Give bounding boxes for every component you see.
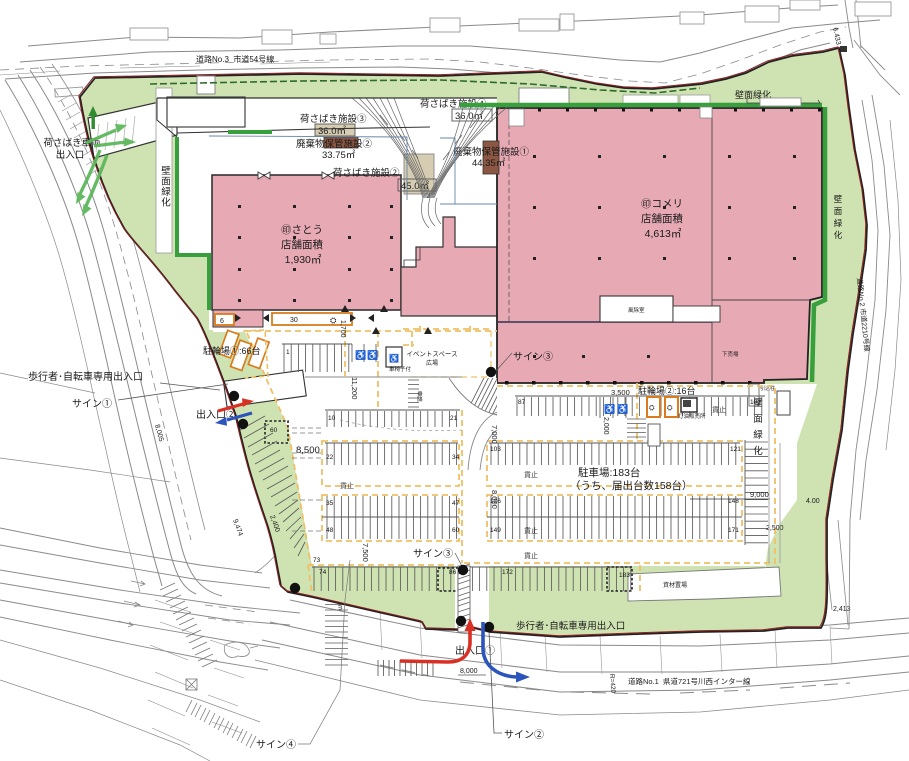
svg-text:21: 21 bbox=[450, 415, 458, 422]
svg-text:資材置場: 資材置場 bbox=[663, 581, 687, 589]
svg-text:荷さばき施設③: 荷さばき施設③ bbox=[300, 113, 367, 125]
svg-text:貨止: 貨止 bbox=[524, 470, 538, 479]
svg-text:103: 103 bbox=[490, 446, 501, 453]
svg-text:道路No.3 市道54号線: 道路No.3 市道54号線 bbox=[196, 54, 274, 64]
svg-text:㊞コメリ: ㊞コメリ bbox=[641, 198, 683, 210]
svg-text:♿: ♿ bbox=[355, 349, 366, 360]
svg-text:サイン③: サイン③ bbox=[513, 351, 553, 363]
svg-text:73: 73 bbox=[313, 557, 321, 564]
svg-text:乗降: 乗降 bbox=[416, 391, 423, 404]
svg-text:47: 47 bbox=[452, 500, 460, 507]
svg-text:60: 60 bbox=[452, 527, 460, 534]
svg-text:4.00: 4.00 bbox=[806, 498, 820, 505]
svg-text:171: 171 bbox=[728, 527, 739, 534]
svg-text:出入口①: 出入口① bbox=[455, 644, 495, 657]
svg-text:6: 6 bbox=[220, 318, 224, 325]
svg-text:サイン④: サイン④ bbox=[256, 739, 296, 751]
svg-text:貨止: 貨止 bbox=[524, 551, 538, 560]
svg-text:㊞さとう: ㊞さとう bbox=[281, 224, 323, 236]
svg-text:4,613㎡: 4,613㎡ bbox=[645, 228, 682, 240]
svg-text:34: 34 bbox=[452, 454, 460, 461]
svg-text:1,930㎡: 1,930㎡ bbox=[285, 254, 322, 266]
svg-text:9,000: 9,000 bbox=[750, 490, 769, 499]
svg-text:1: 1 bbox=[286, 349, 290, 356]
svg-text:3,500: 3,500 bbox=[611, 388, 630, 397]
svg-text:R=420: R=420 bbox=[608, 674, 616, 694]
svg-text:駐車場:183台: 駐車場:183台 bbox=[578, 466, 640, 479]
svg-text:駐輪場②:16台: 駐輪場②:16台 bbox=[638, 385, 696, 396]
svg-text:7,000: 7,000 bbox=[490, 425, 499, 444]
svg-text:出入口: 出入口 bbox=[56, 149, 85, 161]
svg-text:車椅子付: 車椅子付 bbox=[389, 365, 412, 373]
svg-text:貨止: 貨止 bbox=[340, 481, 354, 490]
svg-text:風除室: 風除室 bbox=[628, 306, 645, 314]
svg-text:87: 87 bbox=[518, 399, 526, 406]
svg-text:♿: ♿ bbox=[389, 353, 399, 363]
svg-text:183: 183 bbox=[619, 572, 630, 579]
svg-text:♿: ♿ bbox=[604, 403, 615, 414]
svg-text:33.75㎡: 33.75㎡ bbox=[322, 150, 356, 161]
svg-text:店舗面積: 店舗面積 bbox=[281, 238, 323, 251]
svg-text:⛭: ⛭ bbox=[667, 405, 673, 412]
svg-text:48: 48 bbox=[326, 527, 334, 534]
svg-text:7,500: 7,500 bbox=[361, 543, 370, 562]
svg-text:サイン③: サイン③ bbox=[413, 548, 453, 560]
svg-text:172: 172 bbox=[502, 569, 513, 576]
svg-text:下売場: 下売場 bbox=[722, 350, 739, 358]
svg-text:店舗面積: 店舗面積 bbox=[641, 212, 683, 225]
svg-text:貨止: 貨止 bbox=[712, 405, 726, 414]
svg-text:⛭: ⛭ bbox=[649, 405, 655, 412]
svg-text:22: 22 bbox=[326, 454, 334, 461]
svg-text:広場: 広場 bbox=[426, 359, 438, 367]
svg-text:8,000: 8,000 bbox=[460, 668, 478, 675]
svg-text:⛭: ⛭ bbox=[330, 316, 337, 325]
svg-text:1,700: 1,700 bbox=[339, 320, 346, 338]
svg-text:2,413: 2,413 bbox=[833, 606, 851, 613]
svg-text:44.35㎡: 44.35㎡ bbox=[472, 158, 506, 169]
svg-text:サイン②: サイン② bbox=[504, 729, 544, 741]
svg-text:74: 74 bbox=[319, 569, 327, 576]
svg-text:サイン①: サイン① bbox=[72, 398, 112, 410]
svg-text:8,500: 8,500 bbox=[296, 445, 320, 456]
svg-text:11,200: 11,200 bbox=[350, 377, 359, 399]
svg-text:駐輪場①:66台: 駐輪場①:66台 bbox=[203, 345, 261, 356]
svg-text:（うち、届出台数158台）: （うち、届出台数158台） bbox=[570, 479, 693, 492]
svg-text:道路No.1 県道721号川西インター線: 道路No.1 県道721号川西インター線 bbox=[628, 676, 751, 686]
svg-text:36.0㎡: 36.0㎡ bbox=[318, 126, 346, 137]
svg-text:45.0㎡: 45.0㎡ bbox=[401, 181, 429, 192]
svg-text:8,000: 8,000 bbox=[490, 490, 499, 509]
svg-text:121: 121 bbox=[730, 446, 741, 453]
svg-text:10: 10 bbox=[328, 415, 336, 422]
svg-text:86: 86 bbox=[449, 569, 457, 576]
svg-text:貨止: 貨止 bbox=[524, 526, 538, 535]
svg-text:灯油販売所: 灯油販売所 bbox=[678, 412, 706, 420]
svg-text:2,000: 2,000 bbox=[602, 417, 609, 435]
svg-text:イベントスペース: イベントスペース bbox=[406, 350, 457, 358]
svg-text:♿: ♿ bbox=[617, 403, 628, 414]
svg-text:壁面緑化: 壁面緑化 bbox=[161, 165, 171, 209]
svg-text:廃棄物保管施設②: 廃棄物保管施設② bbox=[296, 138, 373, 150]
svg-text:35: 35 bbox=[326, 500, 334, 507]
svg-text:歩行者･自転車専用出入口: 歩行者･自転車専用出入口 bbox=[516, 620, 625, 632]
svg-text:149: 149 bbox=[490, 527, 501, 534]
svg-text:102: 102 bbox=[750, 399, 761, 406]
svg-text:60: 60 bbox=[270, 427, 278, 434]
svg-text:♿: ♿ bbox=[367, 349, 378, 360]
svg-text:30: 30 bbox=[290, 317, 298, 324]
svg-text:歩行者･自転車専用出入口: 歩行者･自転車専用出入口 bbox=[28, 370, 143, 383]
svg-text:荷さばき施設②: 荷さばき施設② bbox=[333, 167, 400, 179]
